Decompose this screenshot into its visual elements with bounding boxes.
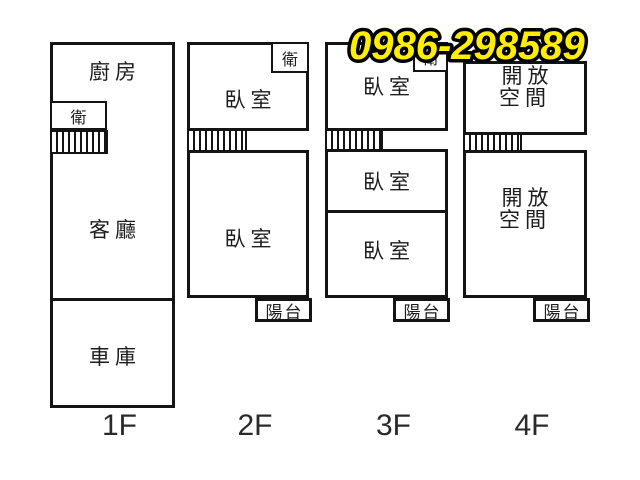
balcony-box-3f: 陽台 (393, 298, 450, 322)
room-label-living: 客廳 (53, 220, 172, 242)
stair-band-2f (187, 128, 309, 153)
floor-plan: 廚房 衛 客廳 車庫 1F 衛 臥室 臥室 陽台 2F 衛 臥室 臥室 臥室 (0, 0, 640, 480)
phone-number: 0986-298589 (343, 18, 637, 70)
room-label-kitchen: 廚房 (53, 62, 172, 84)
floor-label-3f: 3F (325, 411, 448, 441)
stair-band-4f (463, 132, 587, 153)
floor-unit-4f: 開放空間 開放空間 (463, 61, 587, 298)
room-label-open-space-upper: 開放空間 (466, 66, 584, 110)
room-label-garage: 車庫 (53, 347, 172, 369)
stairs-hatch-2f (187, 131, 247, 150)
room-label-bath-1f: 衛 (70, 104, 86, 128)
room-label-balcony-4f: 陽台 (542, 298, 582, 323)
stairs-hatch-1f (50, 130, 108, 154)
stair-band-3f (325, 128, 448, 152)
floor-unit-1f: 廚房 衛 客廳 車庫 (50, 42, 175, 408)
floor-label-2f: 2F (187, 411, 309, 441)
room-label-bedroom-3f-low: 臥室 (328, 241, 445, 263)
floor-label-4f: 4F (463, 411, 587, 441)
balcony-box-4f: 陽台 (533, 298, 590, 322)
room-label-open-space-lower: 開放空間 (466, 188, 584, 232)
stairs-hatch-3f (325, 131, 383, 149)
room-label-balcony-3f: 陽台 (402, 298, 442, 323)
room-label-bedroom-3f-mid: 臥室 (328, 172, 445, 194)
bath-box-1f: 衛 (50, 101, 107, 130)
wall-divider-1f (50, 298, 175, 301)
stairs-hatch-4f (463, 135, 522, 150)
room-label-bedroom-3f-top: 臥室 (328, 77, 445, 99)
room-label-bath-2f: 衛 (282, 46, 298, 70)
room-label-bedroom-2f-lower: 臥室 (190, 229, 306, 251)
floor-label-1f: 1F (50, 411, 175, 441)
balcony-box-2f: 陽台 (255, 298, 312, 322)
floor-unit-2f: 衛 臥室 臥室 (187, 42, 309, 298)
wall-divider-3f (325, 210, 448, 213)
floor-unit-3f: 衛 臥室 臥室 臥室 (325, 42, 448, 298)
bath-box-2f: 衛 (271, 42, 309, 73)
room-label-bedroom-2f-upper: 臥室 (190, 90, 306, 112)
room-label-balcony-2f: 陽台 (264, 298, 304, 323)
phone-number-text: 0986-298589 (349, 24, 586, 68)
